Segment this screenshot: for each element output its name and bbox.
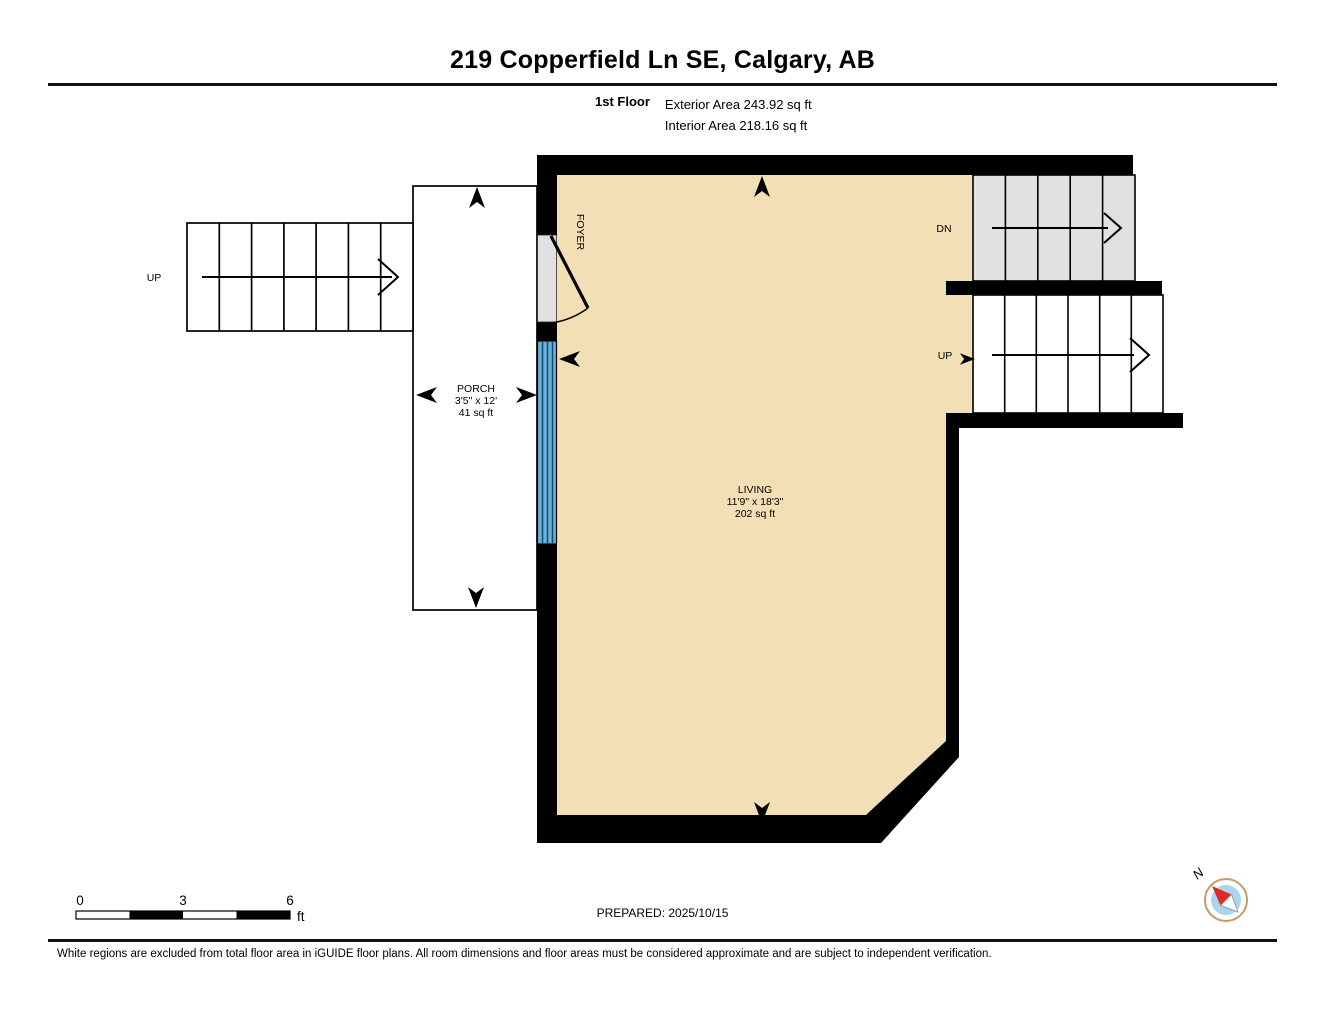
exterior-stairs-up-label: UP (147, 272, 162, 284)
exterior-stairs (187, 223, 413, 331)
porch-dimensions: 3'5" x 12' (455, 395, 497, 407)
footer-disclaimer: White regions are excluded from total fl… (57, 948, 1157, 960)
stairs-up-label: UP (938, 350, 953, 362)
porch-area: 41 sq ft (459, 407, 494, 419)
wall-left-mid (537, 322, 557, 341)
door-opening (538, 235, 557, 322)
prepared-date: PREPARED: 2025/10/15 (0, 906, 1325, 920)
footer-divider (48, 939, 1277, 942)
living-window (538, 341, 557, 544)
stairs-down (973, 175, 1135, 281)
foyer-label: FOYER (574, 214, 586, 251)
living-room-dimensions: 11'9" x 18'3" (727, 496, 784, 508)
wall-left-lower (537, 544, 557, 843)
wall-stair-divider (946, 281, 1162, 295)
floor-plan-svg: FOYER LIVING 11'9" x 18'3" 202 sq ft POR… (0, 0, 1325, 1024)
stairs-down-label: DN (936, 223, 951, 235)
compass-north-label: N (1190, 864, 1207, 882)
wall-stair-bottom (946, 413, 1183, 428)
porch-name: PORCH (457, 383, 495, 395)
living-room-area: 202 sq ft (735, 508, 775, 520)
wall-left-upper (537, 175, 557, 235)
floorplan-page: 219 Copperfield Ln SE, Calgary, AB 1st F… (0, 0, 1325, 1024)
wall-top (537, 155, 1133, 175)
stairs-up-interior (973, 295, 1163, 413)
living-room-name: LIVING (738, 484, 772, 496)
